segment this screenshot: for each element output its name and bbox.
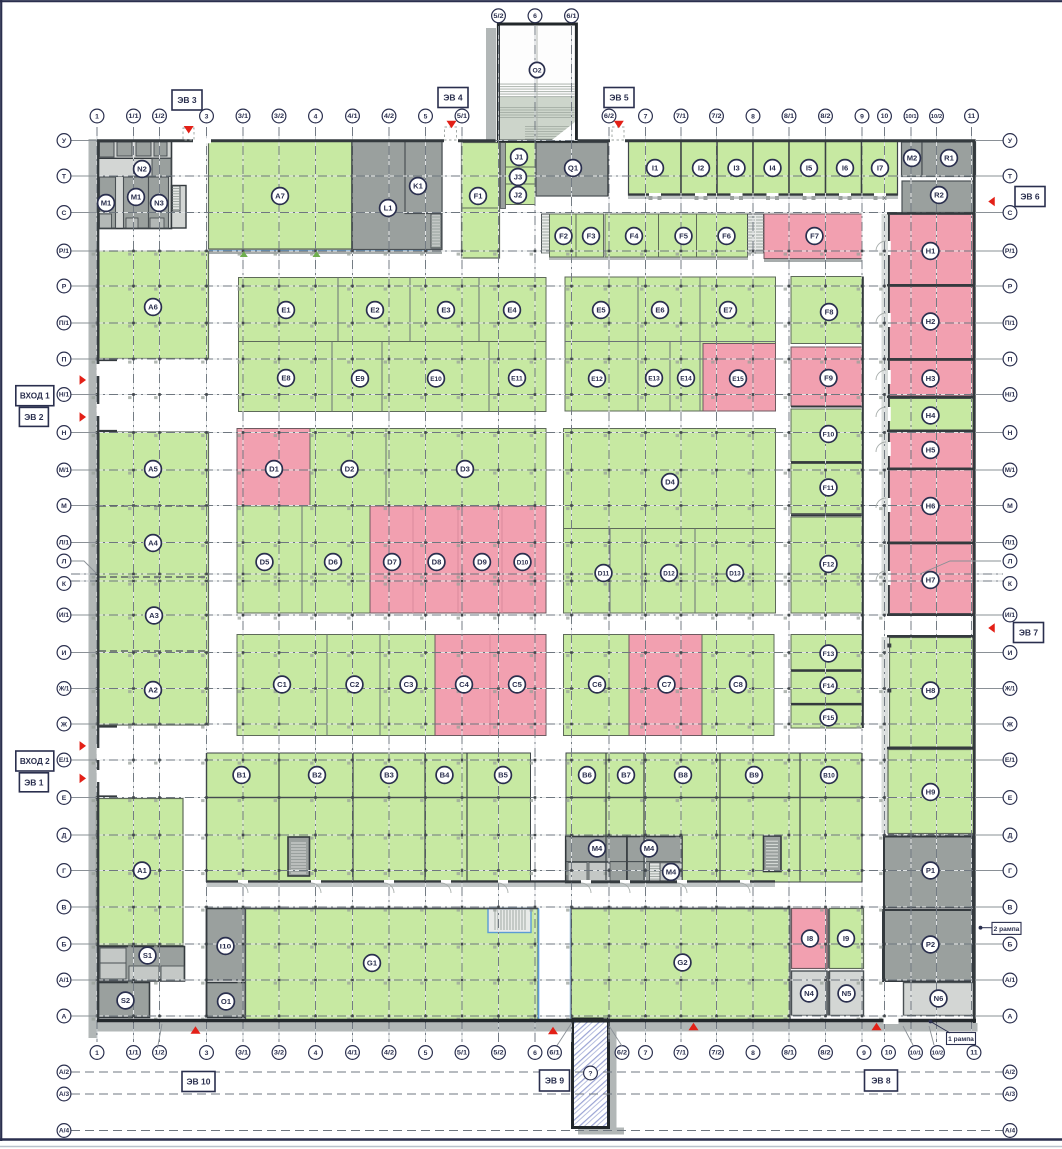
svg-text:Ж: Ж (60, 721, 68, 728)
svg-text:10/1: 10/1 (905, 114, 916, 120)
svg-text:D7: D7 (387, 558, 397, 567)
svg-text:M4: M4 (592, 844, 603, 853)
svg-text:Д: Д (1008, 832, 1013, 839)
svg-text:5/1: 5/1 (457, 114, 468, 120)
svg-text:5/2: 5/2 (493, 14, 504, 20)
svg-text:E10: E10 (430, 376, 442, 383)
svg-text:Д: Д (62, 832, 67, 839)
svg-text:I5: I5 (806, 164, 813, 173)
svg-text:8/1: 8/1 (784, 1051, 795, 1057)
svg-text:3/2: 3/2 (274, 114, 285, 120)
svg-text:N4: N4 (804, 989, 814, 998)
svg-text:F11: F11 (823, 485, 835, 492)
svg-text:D2: D2 (345, 465, 355, 474)
svg-text:G1: G1 (367, 959, 378, 968)
svg-text:Е/1: Е/1 (59, 758, 70, 764)
svg-text:1 рампа: 1 рампа (948, 1036, 974, 1043)
svg-text:B3: B3 (384, 771, 394, 780)
svg-text:I8: I8 (807, 934, 813, 943)
svg-text:A7: A7 (275, 192, 285, 201)
svg-text:R1: R1 (944, 154, 954, 163)
svg-text:A6: A6 (148, 303, 158, 312)
svg-text:5: 5 (424, 113, 428, 120)
svg-text:4/2: 4/2 (384, 1051, 395, 1057)
svg-text:M4: M4 (666, 868, 677, 877)
svg-text:I7: I7 (877, 164, 883, 173)
svg-text:10/1: 10/1 (910, 1050, 921, 1056)
svg-text:H1: H1 (926, 247, 936, 256)
svg-text:F15: F15 (823, 715, 835, 722)
svg-text:ЭВ 2: ЭВ 2 (24, 412, 44, 422)
svg-text:Е/1: Е/1 (1005, 758, 1016, 764)
svg-text:A3: A3 (149, 611, 159, 620)
svg-text:6/1: 6/1 (549, 1051, 560, 1057)
svg-text:N3: N3 (154, 199, 164, 208)
svg-text:E4: E4 (507, 306, 517, 315)
svg-text:D8: D8 (432, 558, 442, 567)
svg-text:E3: E3 (441, 306, 450, 315)
svg-text:I10: I10 (220, 943, 232, 950)
svg-text:А/4: А/4 (1005, 1129, 1016, 1135)
svg-text:Е: Е (62, 795, 67, 802)
svg-text:F12: F12 (823, 561, 835, 568)
svg-text:А/2: А/2 (59, 1070, 70, 1076)
svg-text:P2: P2 (926, 940, 935, 949)
svg-text:J3: J3 (514, 173, 522, 182)
svg-text:6: 6 (533, 13, 537, 20)
svg-text:H6: H6 (926, 502, 936, 511)
svg-text:1/2: 1/2 (154, 114, 165, 120)
svg-text:Р: Р (1008, 283, 1013, 290)
svg-text:M4: M4 (644, 844, 655, 853)
svg-text:H2: H2 (926, 317, 936, 326)
svg-text:П: П (62, 356, 67, 363)
svg-text:М: М (61, 503, 67, 510)
svg-text:Г: Г (1008, 868, 1012, 875)
svg-text:M1: M1 (101, 199, 112, 208)
svg-text:3: 3 (205, 113, 209, 120)
svg-text:D13: D13 (729, 570, 741, 577)
svg-text:E8: E8 (281, 374, 290, 383)
svg-text:6/2: 6/2 (617, 1051, 628, 1057)
svg-text:H3: H3 (926, 374, 936, 383)
svg-text:C1: C1 (277, 680, 287, 689)
svg-text:В: В (62, 904, 67, 911)
svg-text:П/1: П/1 (1005, 321, 1016, 327)
svg-text:F1: F1 (474, 192, 484, 201)
svg-text:N6: N6 (934, 994, 944, 1003)
svg-text:I6: I6 (842, 164, 848, 173)
svg-text:D4: D4 (665, 478, 675, 487)
svg-text:А/3: А/3 (59, 1092, 70, 1098)
svg-text:П/1: П/1 (59, 321, 70, 327)
svg-text:ЭВ 1: ЭВ 1 (24, 777, 44, 787)
svg-text:B10: B10 (823, 772, 835, 779)
svg-text:7/1: 7/1 (676, 114, 687, 120)
svg-text:Л: Л (62, 558, 67, 565)
svg-text:Б: Б (62, 941, 67, 948)
svg-text:8/2: 8/2 (820, 1051, 831, 1057)
svg-text:Р: Р (62, 283, 67, 290)
svg-text:F5: F5 (679, 232, 689, 241)
svg-text:S2: S2 (121, 996, 130, 1005)
svg-text:А: А (62, 1013, 67, 1020)
svg-text:1/1: 1/1 (128, 114, 139, 120)
svg-text:E2: E2 (370, 306, 379, 315)
svg-text:А/3: А/3 (1005, 1092, 1016, 1098)
svg-text:F2: F2 (559, 232, 568, 241)
svg-text:B1: B1 (237, 771, 247, 780)
svg-text:F7: F7 (810, 232, 819, 241)
svg-text:ВХОД 1: ВХОД 1 (20, 392, 50, 401)
svg-text:А/2: А/2 (1005, 1070, 1016, 1076)
svg-text:B8: B8 (678, 771, 688, 780)
svg-text:5: 5 (424, 1050, 428, 1057)
svg-text:В: В (1008, 904, 1013, 911)
svg-text:ЭВ 9: ЭВ 9 (545, 1076, 565, 1086)
svg-text:8/2: 8/2 (820, 114, 831, 120)
svg-text:3/2: 3/2 (274, 1051, 285, 1057)
svg-text:ЭВ 5: ЭВ 5 (609, 93, 629, 103)
svg-text:1/1: 1/1 (128, 1051, 139, 1057)
svg-text:7: 7 (644, 1050, 648, 1057)
svg-text:2 рампа: 2 рампа (994, 926, 1020, 933)
svg-text:E6: E6 (655, 306, 664, 315)
svg-text:Б: Б (1008, 941, 1013, 948)
svg-text:Е: Е (1008, 795, 1013, 802)
svg-text:H7: H7 (926, 576, 936, 585)
svg-text:7/2: 7/2 (711, 114, 722, 120)
svg-text:7/1: 7/1 (676, 1051, 687, 1057)
svg-text:Ж: Ж (1006, 721, 1014, 728)
svg-text:I9: I9 (843, 934, 849, 943)
svg-text:7: 7 (644, 113, 648, 120)
svg-text:4/1: 4/1 (347, 1051, 358, 1057)
svg-text:H4: H4 (926, 411, 936, 420)
svg-text:Л/1: Л/1 (59, 541, 70, 547)
svg-text:10: 10 (881, 114, 889, 120)
svg-text:C8: C8 (733, 680, 743, 689)
svg-text:Л: Л (1008, 558, 1013, 565)
svg-text:O1: O1 (221, 997, 232, 1006)
svg-text:F6: F6 (722, 232, 731, 241)
svg-text:H9: H9 (926, 788, 936, 797)
svg-text:Р/1: Р/1 (59, 249, 70, 255)
svg-text:O2: O2 (532, 67, 541, 74)
svg-text:Л/1: Л/1 (1005, 541, 1016, 547)
svg-text:F3: F3 (587, 232, 596, 241)
svg-text:6/2: 6/2 (604, 114, 615, 120)
svg-text:B4: B4 (440, 771, 450, 780)
svg-text:3: 3 (205, 1050, 209, 1057)
svg-text:B9: B9 (749, 771, 759, 780)
svg-text:10/2: 10/2 (931, 114, 942, 120)
svg-text:А/1: А/1 (59, 978, 70, 984)
svg-text:E5: E5 (596, 306, 606, 315)
svg-text:4/2: 4/2 (384, 114, 395, 120)
svg-text:F8: F8 (825, 308, 834, 317)
svg-text:M1: M1 (131, 193, 142, 202)
svg-text:A1: A1 (137, 866, 147, 875)
svg-text:I3: I3 (733, 164, 739, 173)
svg-text:ЭВ 10: ЭВ 10 (186, 1077, 210, 1087)
svg-text:D6: D6 (328, 558, 338, 567)
svg-text:J1: J1 (515, 153, 524, 162)
svg-text:Ж/1: Ж/1 (58, 687, 70, 693)
svg-text:А/1: А/1 (1005, 978, 1016, 984)
svg-text:E7: E7 (723, 306, 732, 315)
svg-text:S1: S1 (143, 951, 153, 960)
svg-text:3/1: 3/1 (238, 1051, 249, 1057)
svg-text:P1: P1 (926, 866, 936, 875)
svg-text:Р/1: Р/1 (1005, 249, 1016, 255)
svg-text:I4: I4 (769, 164, 776, 173)
svg-text:Ж/1: Ж/1 (1004, 687, 1016, 693)
svg-text:?: ? (588, 1070, 592, 1077)
svg-text:11: 11 (968, 114, 976, 120)
svg-text:M2: M2 (907, 154, 918, 163)
svg-text:B7: B7 (621, 771, 631, 780)
svg-text:М: М (1007, 503, 1013, 510)
svg-text:L1: L1 (384, 204, 394, 213)
svg-text:М/1: М/1 (1005, 468, 1016, 474)
svg-text:F13: F13 (823, 651, 835, 658)
svg-text:ЭВ 3: ЭВ 3 (177, 95, 197, 105)
svg-text:ЭВ 8: ЭВ 8 (871, 1076, 891, 1086)
svg-text:А/4: А/4 (59, 1129, 70, 1135)
svg-text:C5: C5 (512, 680, 522, 689)
svg-text:E13: E13 (648, 375, 660, 382)
svg-text:G2: G2 (677, 958, 687, 967)
svg-text:D12: D12 (663, 570, 675, 577)
svg-text:3/1: 3/1 (238, 114, 249, 120)
svg-text:11: 11 (970, 1051, 978, 1057)
svg-text:С: С (62, 210, 67, 217)
svg-text:E9: E9 (355, 374, 364, 383)
svg-text:B5: B5 (498, 771, 508, 780)
svg-text:I2: I2 (698, 164, 704, 173)
svg-text:D10: D10 (517, 559, 529, 566)
svg-text:C2: C2 (350, 680, 360, 689)
svg-text:6/1: 6/1 (566, 14, 577, 20)
svg-text:E11: E11 (511, 375, 523, 382)
svg-text:D5: D5 (260, 558, 270, 567)
svg-text:8/1: 8/1 (784, 114, 795, 120)
svg-text:F4: F4 (630, 232, 640, 241)
svg-text:E14: E14 (680, 375, 692, 382)
svg-text:F9: F9 (824, 374, 833, 383)
svg-text:П: П (1008, 356, 1013, 363)
svg-text:J2: J2 (514, 191, 522, 200)
svg-text:И/1: И/1 (59, 613, 70, 619)
svg-text:И: И (1008, 650, 1013, 657)
svg-text:6: 6 (533, 1050, 537, 1057)
svg-text:1/2: 1/2 (154, 1051, 165, 1057)
svg-text:Н/1: Н/1 (59, 393, 70, 399)
svg-text:Г: Г (62, 868, 66, 875)
svg-text:F14: F14 (823, 683, 835, 690)
svg-text:D9: D9 (477, 558, 487, 567)
svg-text:Q1: Q1 (568, 164, 579, 173)
svg-text:D3: D3 (460, 465, 470, 474)
svg-text:H5: H5 (926, 446, 936, 455)
svg-text:М/1: М/1 (59, 468, 70, 474)
svg-text:A5: A5 (148, 465, 158, 474)
svg-text:H8: H8 (926, 686, 936, 695)
svg-text:4: 4 (314, 113, 318, 120)
svg-text:ВХОД 2: ВХОД 2 (20, 757, 50, 766)
svg-text:I1: I1 (652, 164, 659, 173)
svg-text:10: 10 (885, 1051, 893, 1057)
svg-text:1: 1 (95, 113, 99, 120)
svg-text:4: 4 (314, 1050, 318, 1057)
svg-text:ЭВ 4: ЭВ 4 (443, 93, 463, 103)
svg-text:С: С (1008, 210, 1013, 217)
svg-text:K1: K1 (413, 182, 423, 191)
svg-text:ЭВ 6: ЭВ 6 (1020, 192, 1040, 202)
svg-text:Н/1: Н/1 (1005, 393, 1016, 399)
svg-text:D1: D1 (269, 465, 279, 474)
svg-text:8: 8 (751, 113, 755, 120)
svg-text:D11: D11 (598, 570, 610, 577)
svg-text:ЭВ 7: ЭВ 7 (1019, 628, 1039, 638)
svg-text:C4: C4 (459, 680, 469, 689)
svg-text:B6: B6 (582, 771, 592, 780)
svg-text:7/2: 7/2 (711, 1051, 722, 1057)
svg-text:E15: E15 (732, 376, 744, 383)
svg-text:И: И (62, 650, 67, 657)
svg-text:C7: C7 (662, 680, 672, 689)
svg-text:9: 9 (860, 113, 864, 120)
svg-text:10/2: 10/2 (932, 1050, 943, 1056)
svg-text:Н: Н (62, 430, 67, 437)
svg-text:A2: A2 (148, 686, 158, 695)
svg-text:4/1: 4/1 (347, 114, 358, 120)
svg-text:C3: C3 (404, 680, 414, 689)
svg-text:5/2: 5/2 (493, 1051, 504, 1057)
svg-text:Н: Н (1008, 430, 1013, 437)
svg-text:N5: N5 (842, 989, 852, 998)
svg-text:5/1: 5/1 (457, 1051, 468, 1057)
svg-text:E1: E1 (281, 306, 291, 315)
svg-text:E12: E12 (591, 376, 603, 383)
svg-text:1: 1 (95, 1050, 99, 1057)
svg-text:R2: R2 (934, 191, 944, 200)
svg-text:F10: F10 (823, 431, 835, 438)
svg-text:И/1: И/1 (1005, 613, 1016, 619)
svg-text:N2: N2 (137, 165, 147, 174)
svg-text:A4: A4 (148, 539, 158, 548)
svg-text:9: 9 (862, 1050, 866, 1057)
svg-text:8: 8 (751, 1050, 755, 1057)
svg-text:C6: C6 (592, 680, 602, 689)
svg-text:А: А (1008, 1013, 1013, 1020)
svg-text:B2: B2 (312, 771, 322, 780)
